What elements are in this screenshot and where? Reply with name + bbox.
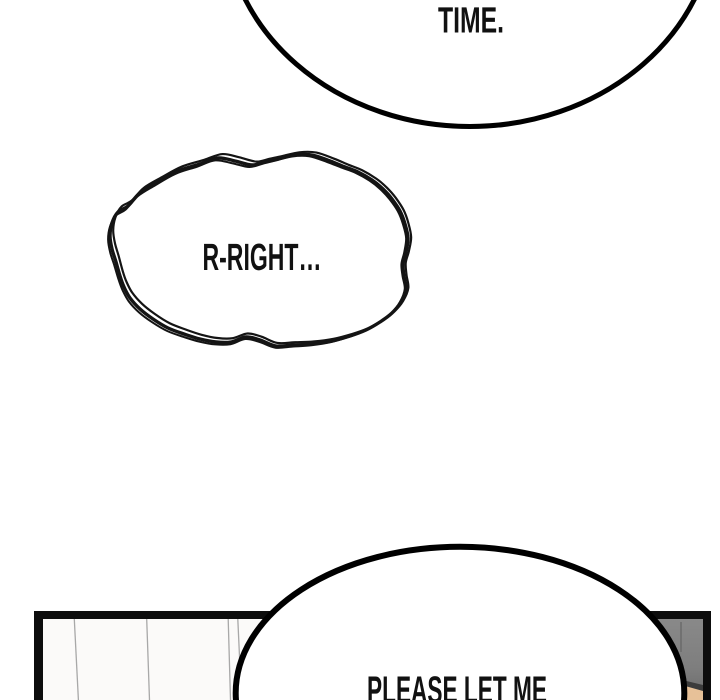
svg-text:PLEASE LET ME: PLEASE LET ME bbox=[367, 669, 547, 700]
svg-text:R-RIGHT…: R-RIGHT… bbox=[203, 237, 322, 279]
svg-text:TIME.: TIME. bbox=[438, 0, 504, 41]
